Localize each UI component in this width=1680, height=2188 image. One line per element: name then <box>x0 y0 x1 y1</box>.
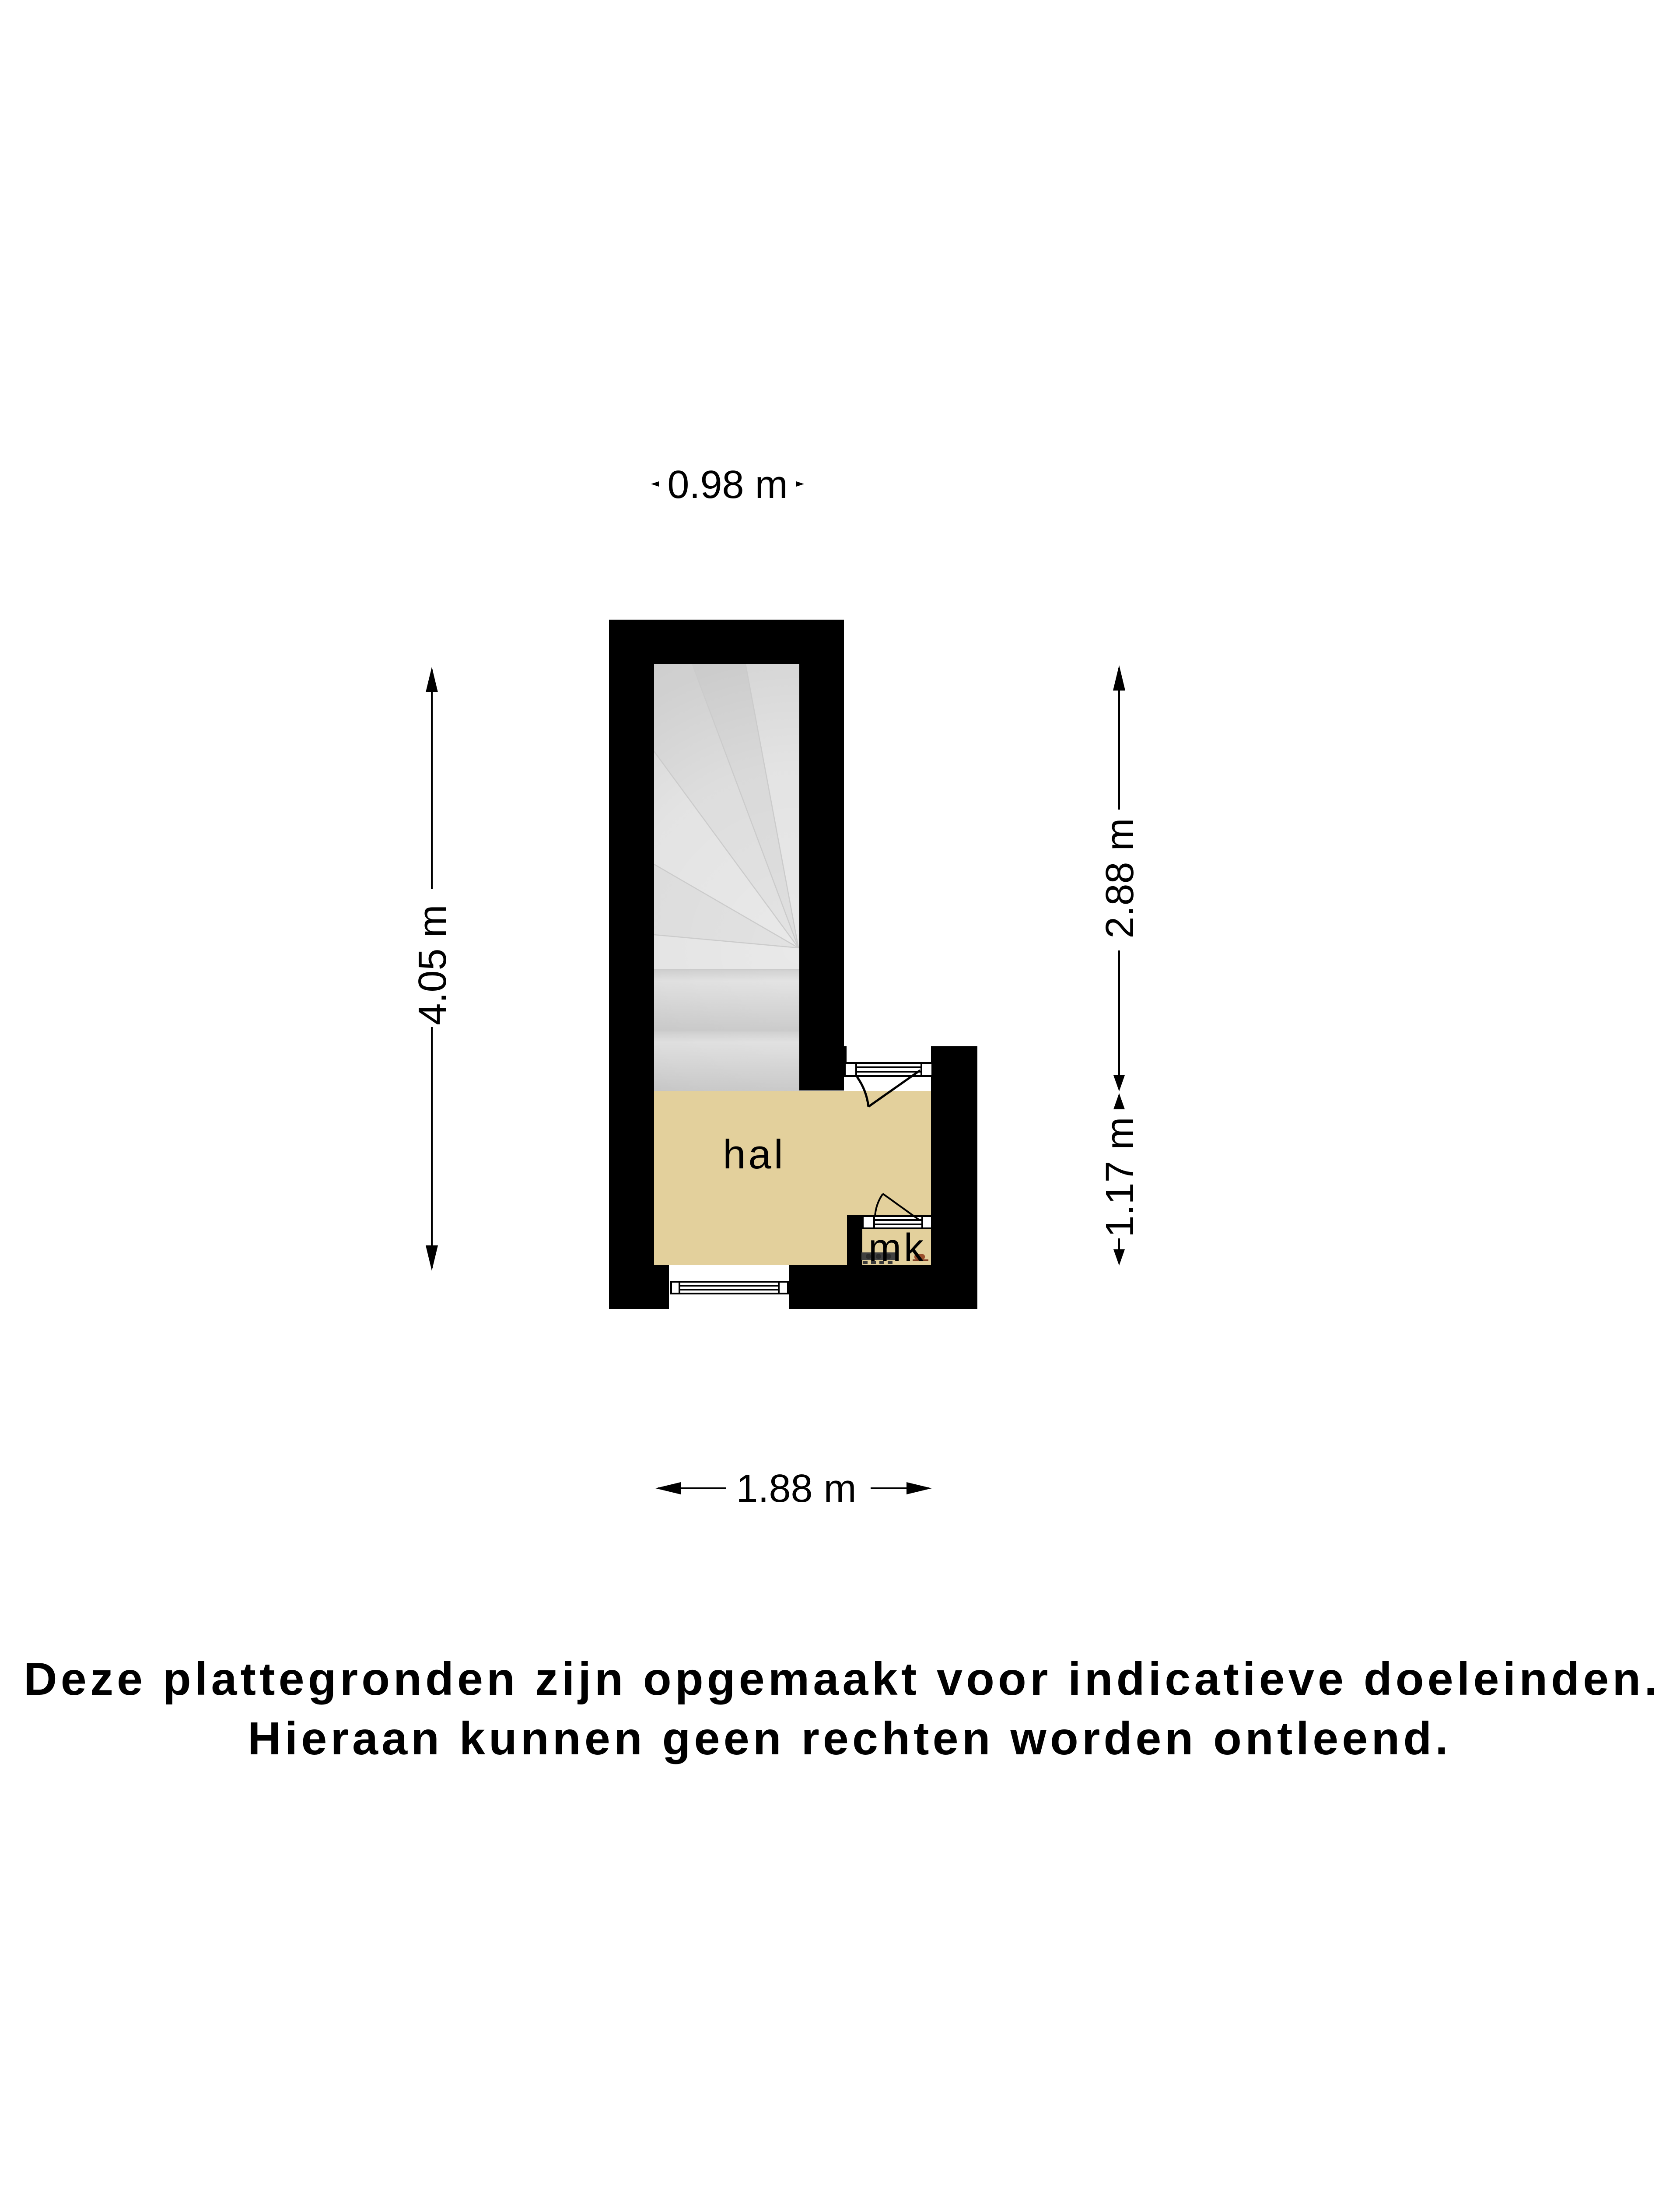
svg-text:2.88 m: 2.88 m <box>1098 818 1142 938</box>
svg-text:Deze plattegronden zijn opgema: Deze plattegronden zijn opgemaakt voor i… <box>24 1653 1661 1705</box>
svg-text:0.98 m: 0.98 m <box>667 463 787 507</box>
svg-text:Hieraan kunnen geen rechten wo: Hieraan kunnen geen rechten worden ontle… <box>248 1713 1452 1764</box>
svg-text:1.88 m: 1.88 m <box>736 1467 856 1511</box>
svg-text:4.05 m: 4.05 m <box>411 905 455 1025</box>
svg-text:hal: hal <box>723 1131 785 1177</box>
svg-text:mk: mk <box>868 1226 926 1270</box>
svg-text:1.17 m: 1.17 m <box>1098 1117 1142 1237</box>
